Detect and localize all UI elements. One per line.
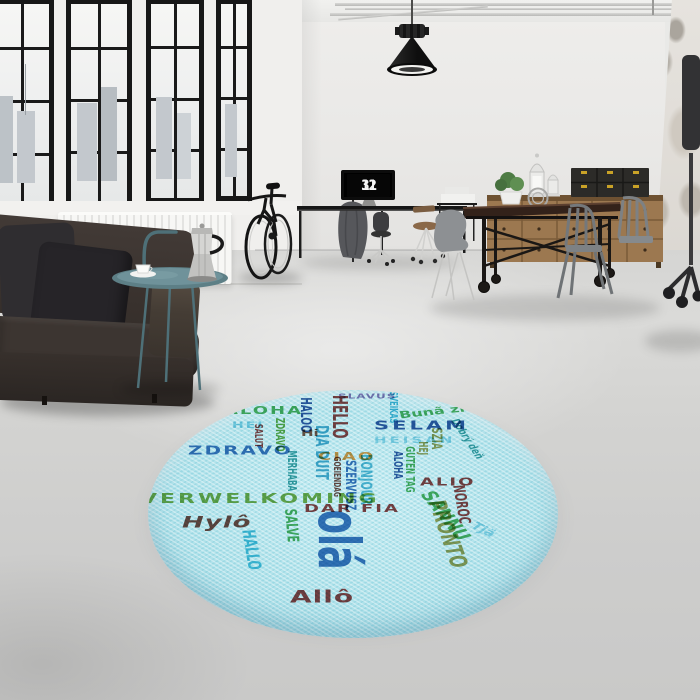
rug-word: ALOHA <box>224 406 303 417</box>
city-building <box>77 103 97 182</box>
sofa-leg <box>42 396 47 405</box>
rug-word: Hi <box>301 429 319 438</box>
loft-room-photo: 11 32 <box>0 0 700 700</box>
rug-word: Allô <box>290 588 354 605</box>
ceiling-pipe <box>335 3 700 6</box>
window-glass <box>151 4 199 198</box>
monitor-flip-clock: 11 32 <box>347 174 390 197</box>
window-glass <box>221 4 247 196</box>
rug-word: HALLO <box>238 529 263 570</box>
ceiling-pipe <box>345 8 700 10</box>
rug-word: GUTEN TAG <box>404 446 416 492</box>
rug: ALOHAHEISALUTZDRAVOMERHABAZDRAVOHALOODIA… <box>148 390 558 639</box>
city-building <box>101 87 117 182</box>
city-building <box>17 111 35 183</box>
window <box>0 0 54 208</box>
rug-word: SVEIKAS <box>388 391 399 423</box>
rug-word: Hylô <box>182 515 251 531</box>
lamp-cord <box>411 0 413 26</box>
lamp-detail <box>395 27 400 35</box>
dining-area <box>420 150 670 315</box>
city-crane <box>25 64 26 116</box>
lamp-bulb-area <box>399 67 425 72</box>
city-building <box>156 97 172 178</box>
rug-word: HELLO <box>330 395 350 439</box>
window <box>66 0 132 206</box>
city-building <box>177 113 191 179</box>
pipe-bracket <box>652 0 654 15</box>
office-chair-right <box>664 55 700 305</box>
rug-word: SALVE <box>282 509 301 543</box>
pendant-lamp <box>399 24 425 38</box>
window-glass <box>71 4 127 201</box>
city-building <box>225 104 237 177</box>
rug-word: olá <box>310 510 368 570</box>
rug-words-layer: ALOHAHEISALUTZDRAVOMERHABAZDRAVOHALOODIA… <box>148 390 558 638</box>
rug-surface: ALOHAHEISALUTZDRAVOMERHABAZDRAVOHALOODIA… <box>148 390 558 638</box>
clock-minutes: 32 <box>361 178 376 194</box>
rug-word: SZIA <box>429 428 443 450</box>
side-table <box>100 220 240 395</box>
window <box>146 0 204 203</box>
window-glass <box>0 4 49 203</box>
city-building <box>0 96 13 184</box>
lamp-detail <box>424 27 429 35</box>
rug-word: ZDRAVO <box>188 444 293 456</box>
window <box>216 0 252 201</box>
